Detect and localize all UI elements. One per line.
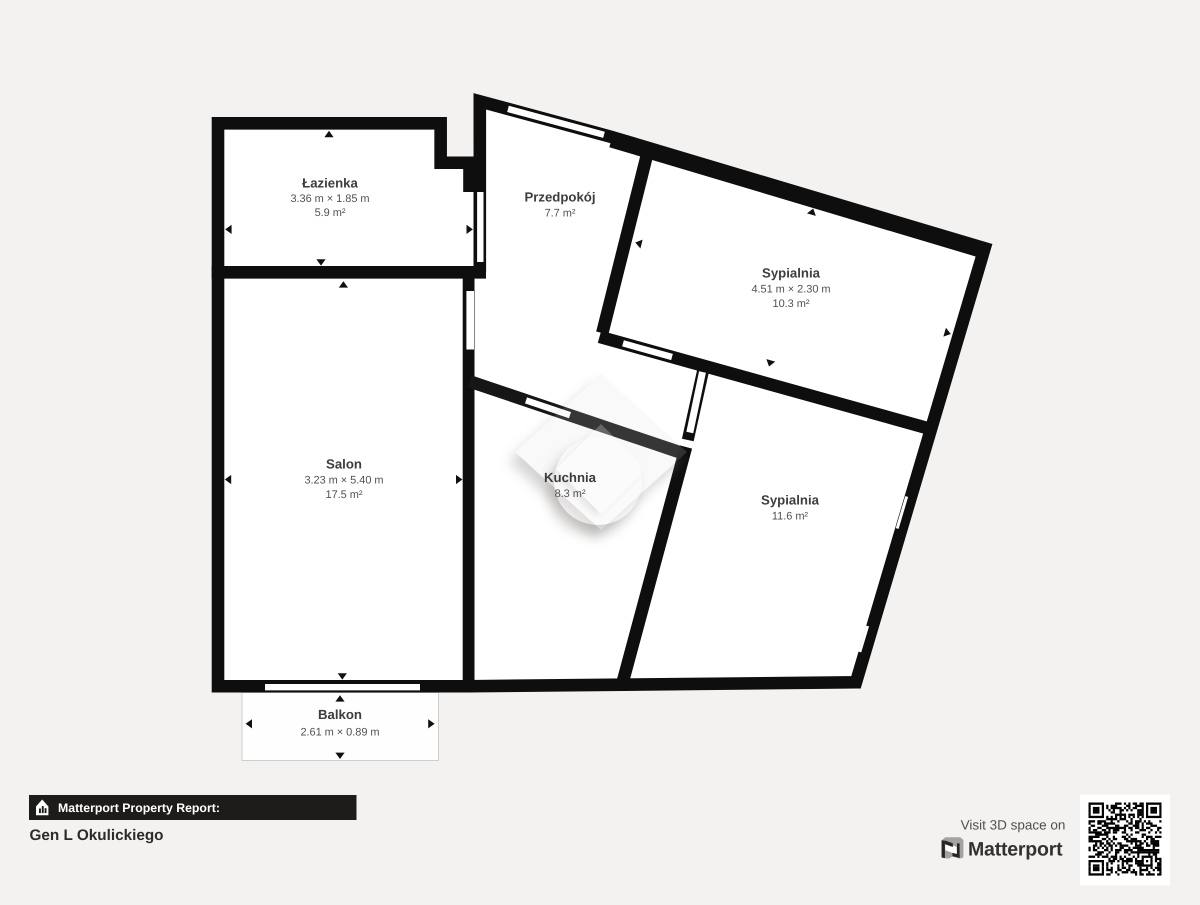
svg-text:5.9 m²: 5.9 m² xyxy=(315,207,346,219)
svg-text:10.3 m²: 10.3 m² xyxy=(773,298,810,310)
svg-text:Visit 3D space on: Visit 3D space on xyxy=(961,818,1066,833)
svg-text:Matterport Property Report:: Matterport Property Report: xyxy=(58,801,220,815)
svg-text:Sypialnia: Sypialnia xyxy=(762,266,821,281)
svg-text:Przedpokój: Przedpokój xyxy=(524,190,595,205)
svg-text:Gen L Okulickiego: Gen L Okulickiego xyxy=(30,827,164,844)
svg-text:17.5 m²: 17.5 m² xyxy=(326,489,363,501)
svg-text:8.3 m²: 8.3 m² xyxy=(555,488,586,500)
svg-text:Łazienka: Łazienka xyxy=(302,176,358,191)
svg-text:Sypialnia: Sypialnia xyxy=(761,493,820,508)
svg-text:Matterport: Matterport xyxy=(968,839,1063,861)
svg-text:3.23 m × 5.40 m: 3.23 m × 5.40 m xyxy=(304,475,383,487)
svg-text:Balkon: Balkon xyxy=(318,707,362,722)
svg-text:Salon: Salon xyxy=(326,457,362,472)
svg-text:11.6 m²: 11.6 m² xyxy=(772,511,809,523)
svg-text:2.61 m × 0.89 m: 2.61 m × 0.89 m xyxy=(300,727,379,739)
svg-text:3.36 m × 1.85 m: 3.36 m × 1.85 m xyxy=(290,193,369,205)
svg-text:7.7 m²: 7.7 m² xyxy=(545,208,576,220)
svg-text:Kuchnia: Kuchnia xyxy=(544,470,597,485)
svg-text:4.51 m × 2.30 m: 4.51 m × 2.30 m xyxy=(751,284,830,296)
